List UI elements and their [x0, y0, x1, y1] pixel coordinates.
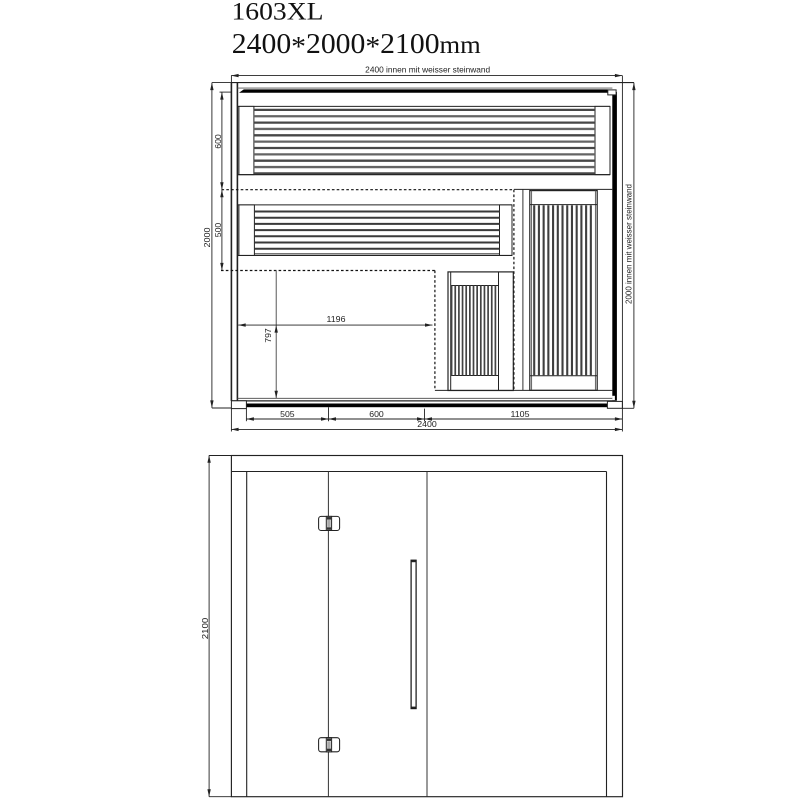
svg-text:2400*2000*2100mm: 2400*2000*2100mm [232, 29, 482, 63]
svg-text:600: 600 [369, 409, 384, 419]
svg-text:1603XL: 1603XL [232, 0, 324, 26]
svg-text:1196: 1196 [327, 314, 346, 324]
svg-text:2100: 2100 [200, 617, 210, 639]
svg-text:797: 797 [263, 328, 273, 343]
svg-text:2000 innen mit weisser steinwa: 2000 innen mit weisser steinwand [623, 184, 633, 304]
svg-text:2400: 2400 [417, 419, 437, 429]
svg-text:1105: 1105 [511, 409, 530, 419]
svg-text:505: 505 [280, 409, 295, 419]
svg-text:2400 innen mit weisser steinwa: 2400 innen mit weisser steinwand [365, 65, 490, 75]
svg-text:2000: 2000 [202, 227, 212, 247]
